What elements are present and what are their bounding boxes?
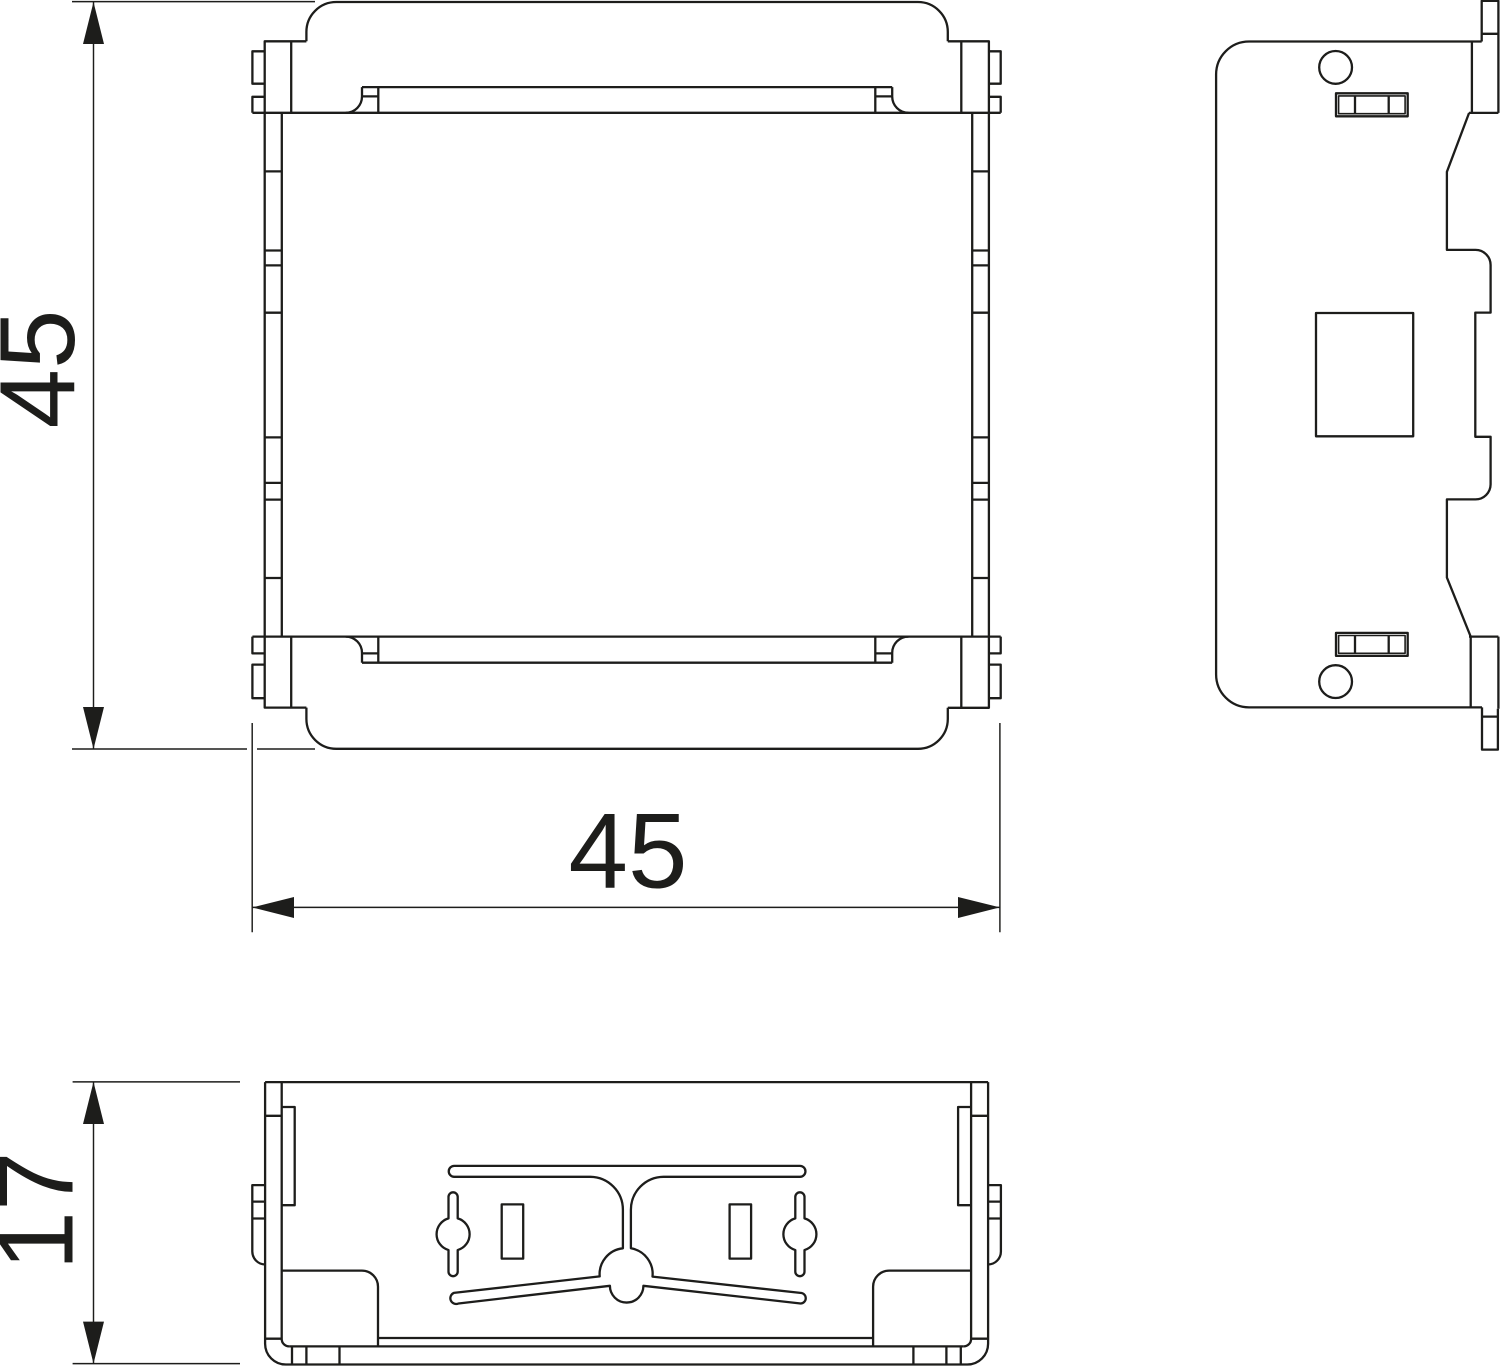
svg-text:45: 45 xyxy=(0,309,97,428)
svg-text:17: 17 xyxy=(0,1151,96,1270)
svg-text:45: 45 xyxy=(568,790,687,910)
